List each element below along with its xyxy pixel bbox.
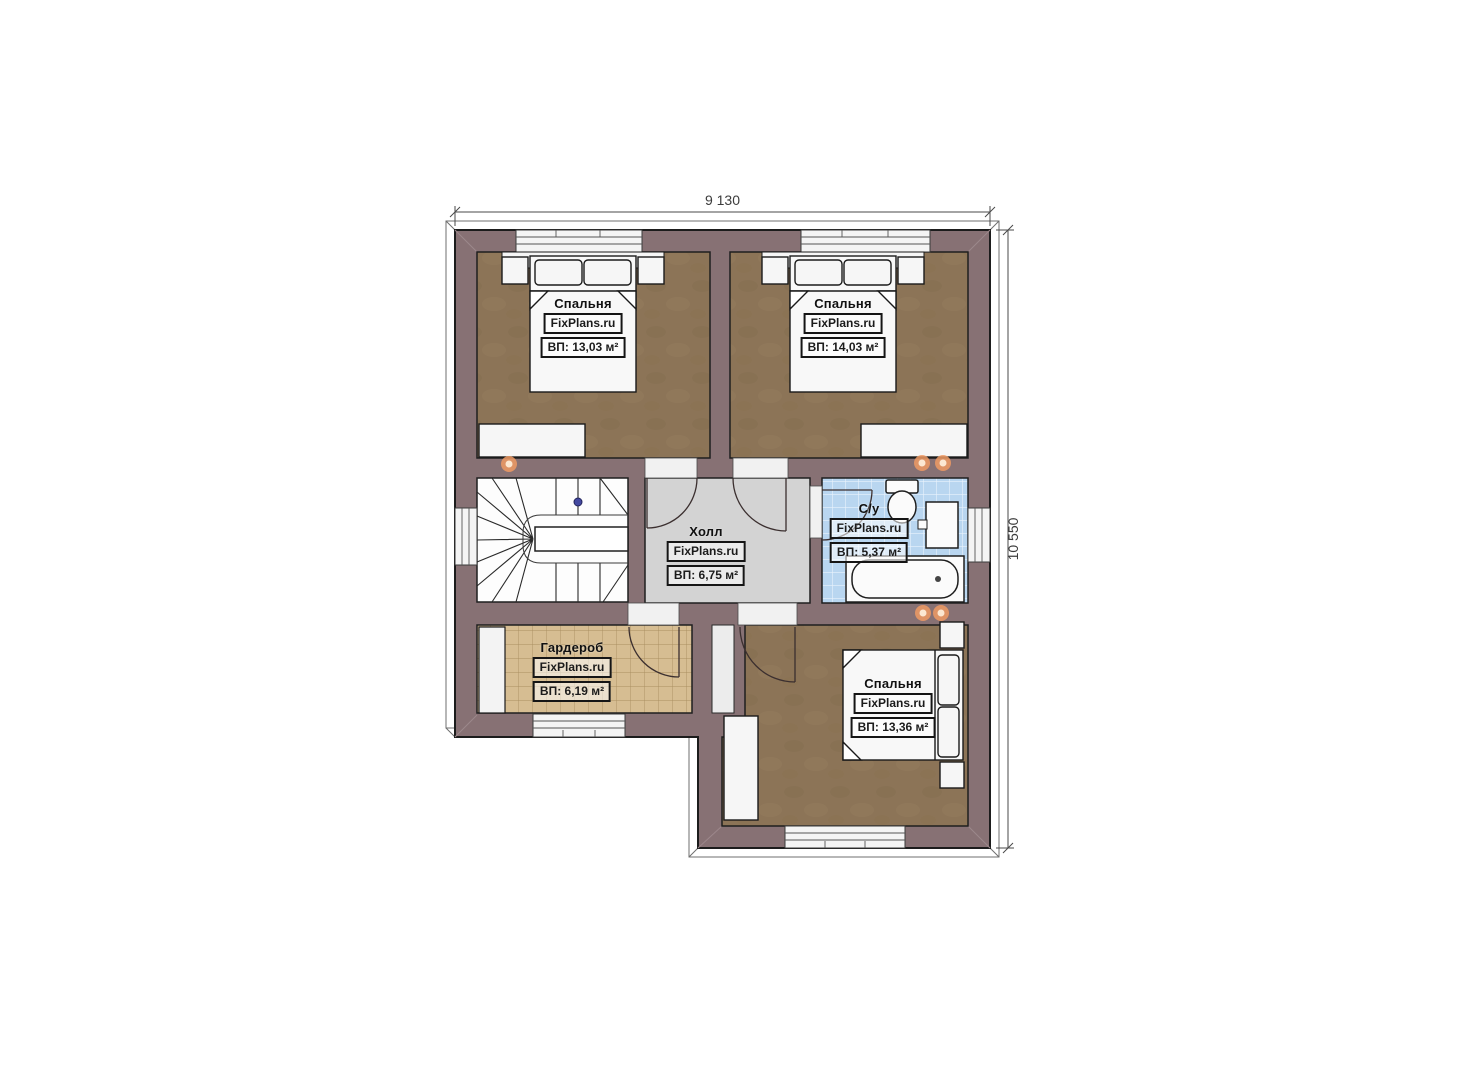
room-name: Холл [689,524,722,539]
room-name: Спальня [864,676,922,691]
light-icon [914,455,930,471]
stair-marker [574,498,582,506]
window-top-right [801,230,930,252]
room-name: Гардероб [540,640,603,655]
shaft [712,625,734,713]
closet [861,424,967,457]
brand-watermark: FixPlans.ru [830,518,909,539]
nightstand [502,257,528,284]
pillow [938,655,959,705]
pillow [584,260,631,285]
dimension-height-label: 10 550 [1005,518,1021,561]
room-area: ВП: 13,36 м² [851,717,936,738]
light-icon [915,605,931,621]
room-label-bathroom: С/у FixPlans.ru ВП: 5,37 м² [830,501,909,563]
page: { "dimensions": { "width": "9 130", "hei… [0,0,1473,1080]
room-area: ВП: 6,75 м² [667,565,745,586]
dimension-width-label: 9 130 [455,192,990,208]
nightstand [940,622,964,648]
room-label-bedroom-top-right: Спальня FixPlans.ru ВП: 14,03 м² [801,296,886,358]
room-label-wardrobe: Гардероб FixPlans.ru ВП: 6,19 м² [533,640,612,702]
wardrobe-door-threshold [628,603,679,625]
window-left-stairs [455,508,477,565]
room-label-bedroom-top-left: Спальня FixPlans.ru ВП: 13,03 м² [541,296,626,358]
hall-door1-threshold [645,458,697,478]
closet [479,424,585,457]
room-area: ВП: 5,37 м² [830,542,908,563]
hall-door2-threshold [733,458,788,478]
nightstand [940,762,964,788]
brand-watermark: FixPlans.ru [804,313,883,334]
nightstand [638,257,664,284]
light-icon [935,455,951,471]
pillow [535,260,582,285]
nightstand [762,257,788,284]
brand-watermark: FixPlans.ru [544,313,623,334]
brand-watermark: FixPlans.ru [854,693,933,714]
room-name: Спальня [814,296,872,311]
pillow [844,260,891,285]
room-name: Спальня [554,296,612,311]
room-area: ВП: 6,19 м² [533,681,611,702]
window-bottom-bedroom [785,826,905,848]
light-icon [501,456,517,472]
pillow [938,707,959,757]
room-label-bedroom-bottom: Спальня FixPlans.ru ВП: 13,36 м² [851,676,936,738]
nightstand [898,257,924,284]
room-area: ВП: 13,03 м² [541,337,626,358]
room-name: С/у [859,501,880,516]
window-right-bathroom [968,508,990,562]
bedroom-door-threshold [738,603,797,625]
room-area: ВП: 14,03 м² [801,337,886,358]
dim-line-top [450,206,995,226]
closet [724,716,758,820]
light-icon [933,605,949,621]
brand-watermark: FixPlans.ru [667,541,746,562]
brand-watermark: FixPlans.ru [533,657,612,678]
wardrobe-shelf [479,627,505,713]
window-top-left [516,230,642,252]
pillow [795,260,842,285]
room-label-hall: Холл FixPlans.ru ВП: 6,75 м² [667,524,746,586]
bathroom-door-threshold [810,486,822,538]
window-bottom-wardrobe [533,714,625,737]
